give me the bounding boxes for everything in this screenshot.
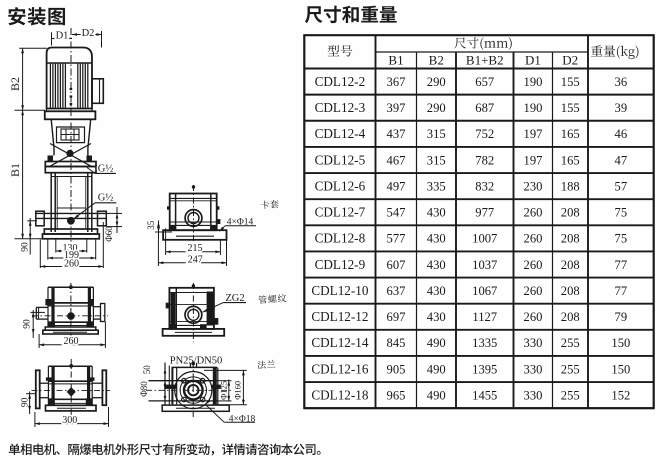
svg-text:4×Φ18: 4×Φ18 bbox=[229, 415, 256, 425]
svg-text:CDL12-8: CDL12-8 bbox=[315, 231, 366, 246]
svg-text:46: 46 bbox=[615, 127, 628, 141]
svg-text:CDL12-14: CDL12-14 bbox=[311, 335, 369, 350]
svg-text:260: 260 bbox=[524, 258, 543, 272]
svg-text:905: 905 bbox=[387, 362, 406, 376]
svg-text:208: 208 bbox=[561, 232, 580, 246]
svg-text:497: 497 bbox=[387, 179, 406, 193]
svg-text:B1: B1 bbox=[8, 163, 22, 177]
svg-text:845: 845 bbox=[387, 336, 406, 350]
svg-text:35: 35 bbox=[146, 220, 156, 230]
svg-text:260: 260 bbox=[524, 206, 543, 220]
svg-text:335: 335 bbox=[427, 179, 446, 193]
svg-text:75: 75 bbox=[615, 206, 628, 220]
svg-text:Φ60: Φ60 bbox=[104, 226, 114, 242]
svg-text:B2: B2 bbox=[8, 77, 22, 91]
svg-text:208: 208 bbox=[561, 206, 580, 220]
svg-text:1127: 1127 bbox=[472, 310, 497, 324]
svg-text:Φ125: Φ125 bbox=[219, 381, 229, 400]
svg-text:467: 467 bbox=[387, 153, 406, 167]
svg-text:208: 208 bbox=[561, 284, 580, 298]
svg-text:D1: D1 bbox=[56, 31, 69, 42]
svg-text:255: 255 bbox=[561, 336, 580, 350]
svg-text:90: 90 bbox=[20, 397, 30, 407]
svg-text:CDL12-9: CDL12-9 bbox=[315, 257, 366, 272]
svg-text:57: 57 bbox=[615, 179, 628, 193]
svg-text:B1: B1 bbox=[388, 53, 403, 68]
svg-text:47: 47 bbox=[615, 153, 628, 167]
svg-text:CDL12-5: CDL12-5 bbox=[315, 152, 366, 167]
svg-text:1395: 1395 bbox=[472, 362, 497, 376]
svg-text:D1: D1 bbox=[525, 53, 541, 68]
svg-text:36: 36 bbox=[615, 75, 628, 89]
svg-text:165: 165 bbox=[561, 153, 580, 167]
svg-text:657: 657 bbox=[475, 75, 494, 89]
svg-text:490: 490 bbox=[427, 388, 446, 402]
svg-text:300: 300 bbox=[62, 415, 77, 426]
svg-text:CDL12-3: CDL12-3 bbox=[315, 100, 366, 115]
svg-text:490: 490 bbox=[427, 362, 446, 376]
svg-text:607: 607 bbox=[387, 258, 406, 272]
svg-text:208: 208 bbox=[561, 258, 580, 272]
svg-text:490: 490 bbox=[427, 336, 446, 350]
svg-text:547: 547 bbox=[387, 206, 406, 220]
svg-text:188: 188 bbox=[561, 179, 580, 193]
svg-text:150: 150 bbox=[611, 336, 630, 350]
svg-text:CDL12-7: CDL12-7 bbox=[315, 205, 366, 220]
svg-text:782: 782 bbox=[475, 153, 494, 167]
svg-text:832: 832 bbox=[475, 179, 494, 193]
svg-text:260: 260 bbox=[524, 232, 543, 246]
svg-text:330: 330 bbox=[524, 336, 543, 350]
svg-text:430: 430 bbox=[427, 258, 446, 272]
svg-text:77: 77 bbox=[615, 284, 628, 298]
svg-text:977: 977 bbox=[475, 206, 494, 220]
svg-text:CDL12-12: CDL12-12 bbox=[311, 309, 368, 324]
svg-text:315: 315 bbox=[427, 153, 446, 167]
svg-text:255: 255 bbox=[561, 362, 580, 376]
svg-text:437: 437 bbox=[387, 127, 406, 141]
svg-text:1455: 1455 bbox=[472, 388, 497, 402]
svg-text:230: 230 bbox=[524, 179, 543, 193]
svg-text:397: 397 bbox=[387, 101, 406, 115]
svg-text:260: 260 bbox=[524, 310, 543, 324]
svg-text:190: 190 bbox=[524, 101, 543, 115]
svg-text:247: 247 bbox=[188, 254, 203, 265]
svg-text:190: 190 bbox=[524, 75, 543, 89]
svg-text:260: 260 bbox=[64, 336, 79, 347]
svg-text:255: 255 bbox=[561, 388, 580, 402]
svg-text:D2: D2 bbox=[82, 28, 95, 39]
svg-text:150: 150 bbox=[611, 362, 630, 376]
svg-text:D2: D2 bbox=[562, 53, 578, 68]
svg-text:39: 39 bbox=[615, 101, 628, 115]
svg-text:260: 260 bbox=[524, 284, 543, 298]
svg-text:155: 155 bbox=[561, 75, 580, 89]
svg-text:637: 637 bbox=[387, 284, 406, 298]
svg-text:152: 152 bbox=[611, 388, 630, 402]
svg-text:B1+B2: B1+B2 bbox=[466, 53, 504, 68]
svg-text:CDL12-18: CDL12-18 bbox=[311, 387, 369, 402]
svg-text:697: 697 bbox=[387, 310, 406, 324]
svg-text:Φ160: Φ160 bbox=[233, 381, 243, 400]
svg-text:430: 430 bbox=[427, 206, 446, 220]
svg-text:577: 577 bbox=[387, 232, 406, 246]
svg-text:260: 260 bbox=[64, 258, 79, 269]
svg-text:965: 965 bbox=[387, 388, 406, 402]
svg-text:215: 215 bbox=[188, 243, 203, 254]
svg-text:367: 367 bbox=[387, 75, 406, 89]
svg-text:430: 430 bbox=[427, 284, 446, 298]
svg-text:77: 77 bbox=[615, 258, 628, 272]
svg-text:430: 430 bbox=[427, 310, 446, 324]
svg-text:CDL12-4: CDL12-4 bbox=[315, 126, 366, 141]
svg-text:75: 75 bbox=[615, 232, 628, 246]
svg-text:G½: G½ bbox=[98, 193, 114, 204]
svg-text:290: 290 bbox=[427, 75, 446, 89]
svg-text:315: 315 bbox=[427, 127, 446, 141]
svg-text:CDL12-6: CDL12-6 bbox=[315, 178, 366, 193]
svg-text:CDL12-2: CDL12-2 bbox=[315, 74, 366, 89]
svg-text:1037: 1037 bbox=[472, 258, 497, 272]
svg-text:290: 290 bbox=[427, 101, 446, 115]
svg-text:Φ80: Φ80 bbox=[139, 381, 149, 397]
svg-text:752: 752 bbox=[475, 127, 494, 141]
svg-text:330: 330 bbox=[524, 388, 543, 402]
svg-text:1335: 1335 bbox=[472, 336, 497, 350]
svg-text:1067: 1067 bbox=[472, 284, 497, 298]
svg-text:CDL12-16: CDL12-16 bbox=[311, 361, 369, 376]
svg-text:90: 90 bbox=[21, 242, 31, 252]
svg-text:G½: G½ bbox=[98, 163, 114, 174]
svg-text:1007: 1007 bbox=[472, 232, 497, 246]
svg-text:B2: B2 bbox=[429, 53, 444, 68]
svg-text:330: 330 bbox=[524, 362, 543, 376]
svg-text:155: 155 bbox=[561, 101, 580, 115]
svg-text:197: 197 bbox=[524, 127, 543, 141]
svg-text:CDL12-10: CDL12-10 bbox=[311, 283, 369, 298]
svg-text:687: 687 bbox=[475, 101, 494, 115]
svg-text:208: 208 bbox=[561, 310, 580, 324]
svg-text:197: 197 bbox=[524, 153, 543, 167]
svg-text:165: 165 bbox=[561, 127, 580, 141]
svg-text:90: 90 bbox=[23, 319, 33, 329]
svg-text:50: 50 bbox=[142, 365, 152, 375]
svg-text:79: 79 bbox=[615, 310, 628, 324]
svg-text:430: 430 bbox=[427, 232, 446, 246]
